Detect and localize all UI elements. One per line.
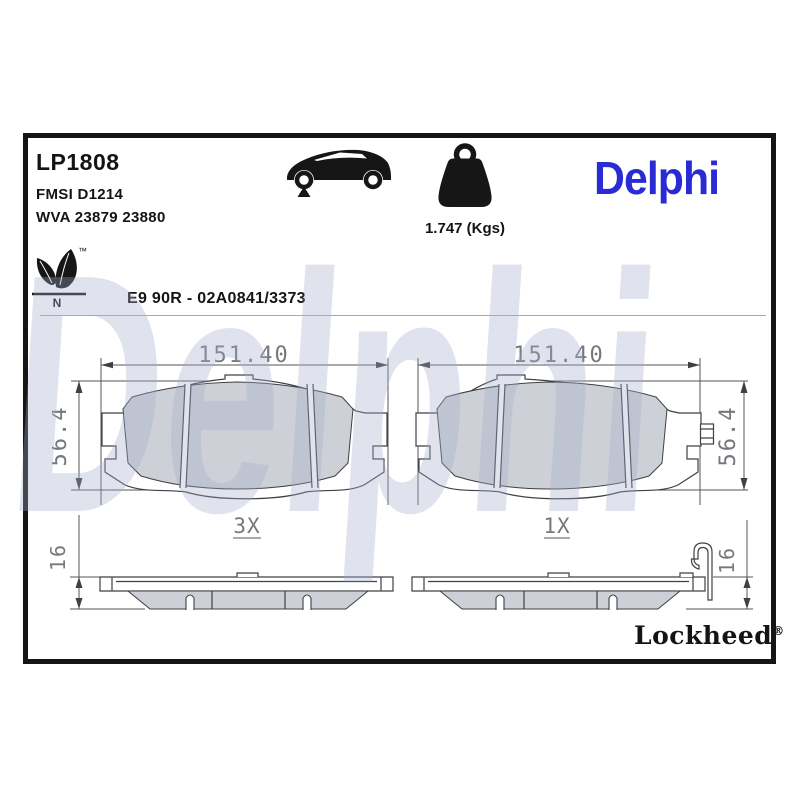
front-view-left-pad: 151.40 56.4 (52, 340, 400, 512)
thickness-dimension-right: 16 (715, 546, 739, 574)
height-dimension-right: 56.4 (716, 406, 741, 467)
lockheed-logo: Lockheed® (634, 622, 785, 650)
fmsi-code: FMSI D1214 (36, 186, 123, 203)
weight-value: 1.747 (Kgs) (404, 220, 526, 237)
divider-line (40, 315, 766, 316)
eco-letter: N (53, 296, 62, 309)
registered-symbol: ® (772, 624, 785, 638)
quantity-left: 3X (233, 514, 260, 538)
width-dimension-left: 151.40 (198, 343, 289, 368)
side-view-left-pad: 3X 16 (50, 512, 400, 614)
delphi-logo: Delphi (594, 155, 719, 201)
car-front-axle-icon (284, 144, 394, 200)
quantity-right: 1X (543, 514, 570, 538)
product-sheet: LP1808 FMSI D1214 WVA 23879 23880 1.747 … (0, 0, 800, 800)
wva-code: WVA 23879 23880 (36, 209, 166, 226)
pad-clip-icon (701, 424, 714, 444)
eco-leaf-icon: ™ N (30, 241, 90, 309)
front-view-right-pad: 151.40 56.4 (404, 340, 756, 512)
approval-code: E9 90R - 02A0841/3373 (127, 290, 306, 308)
front-axle-arrow-icon (298, 187, 311, 198)
thickness-dimension-left: 16 (50, 543, 70, 571)
trademark-symbol: ™ (78, 246, 87, 256)
lockheed-logo-text: Lockheed (634, 621, 772, 650)
width-dimension-right: 151.40 (513, 343, 604, 368)
weight-icon (426, 141, 504, 219)
part-number: LP1808 (36, 149, 120, 176)
side-view-right-pad: 1X 16 (404, 512, 756, 614)
height-dimension-left: 56.4 (52, 406, 72, 467)
